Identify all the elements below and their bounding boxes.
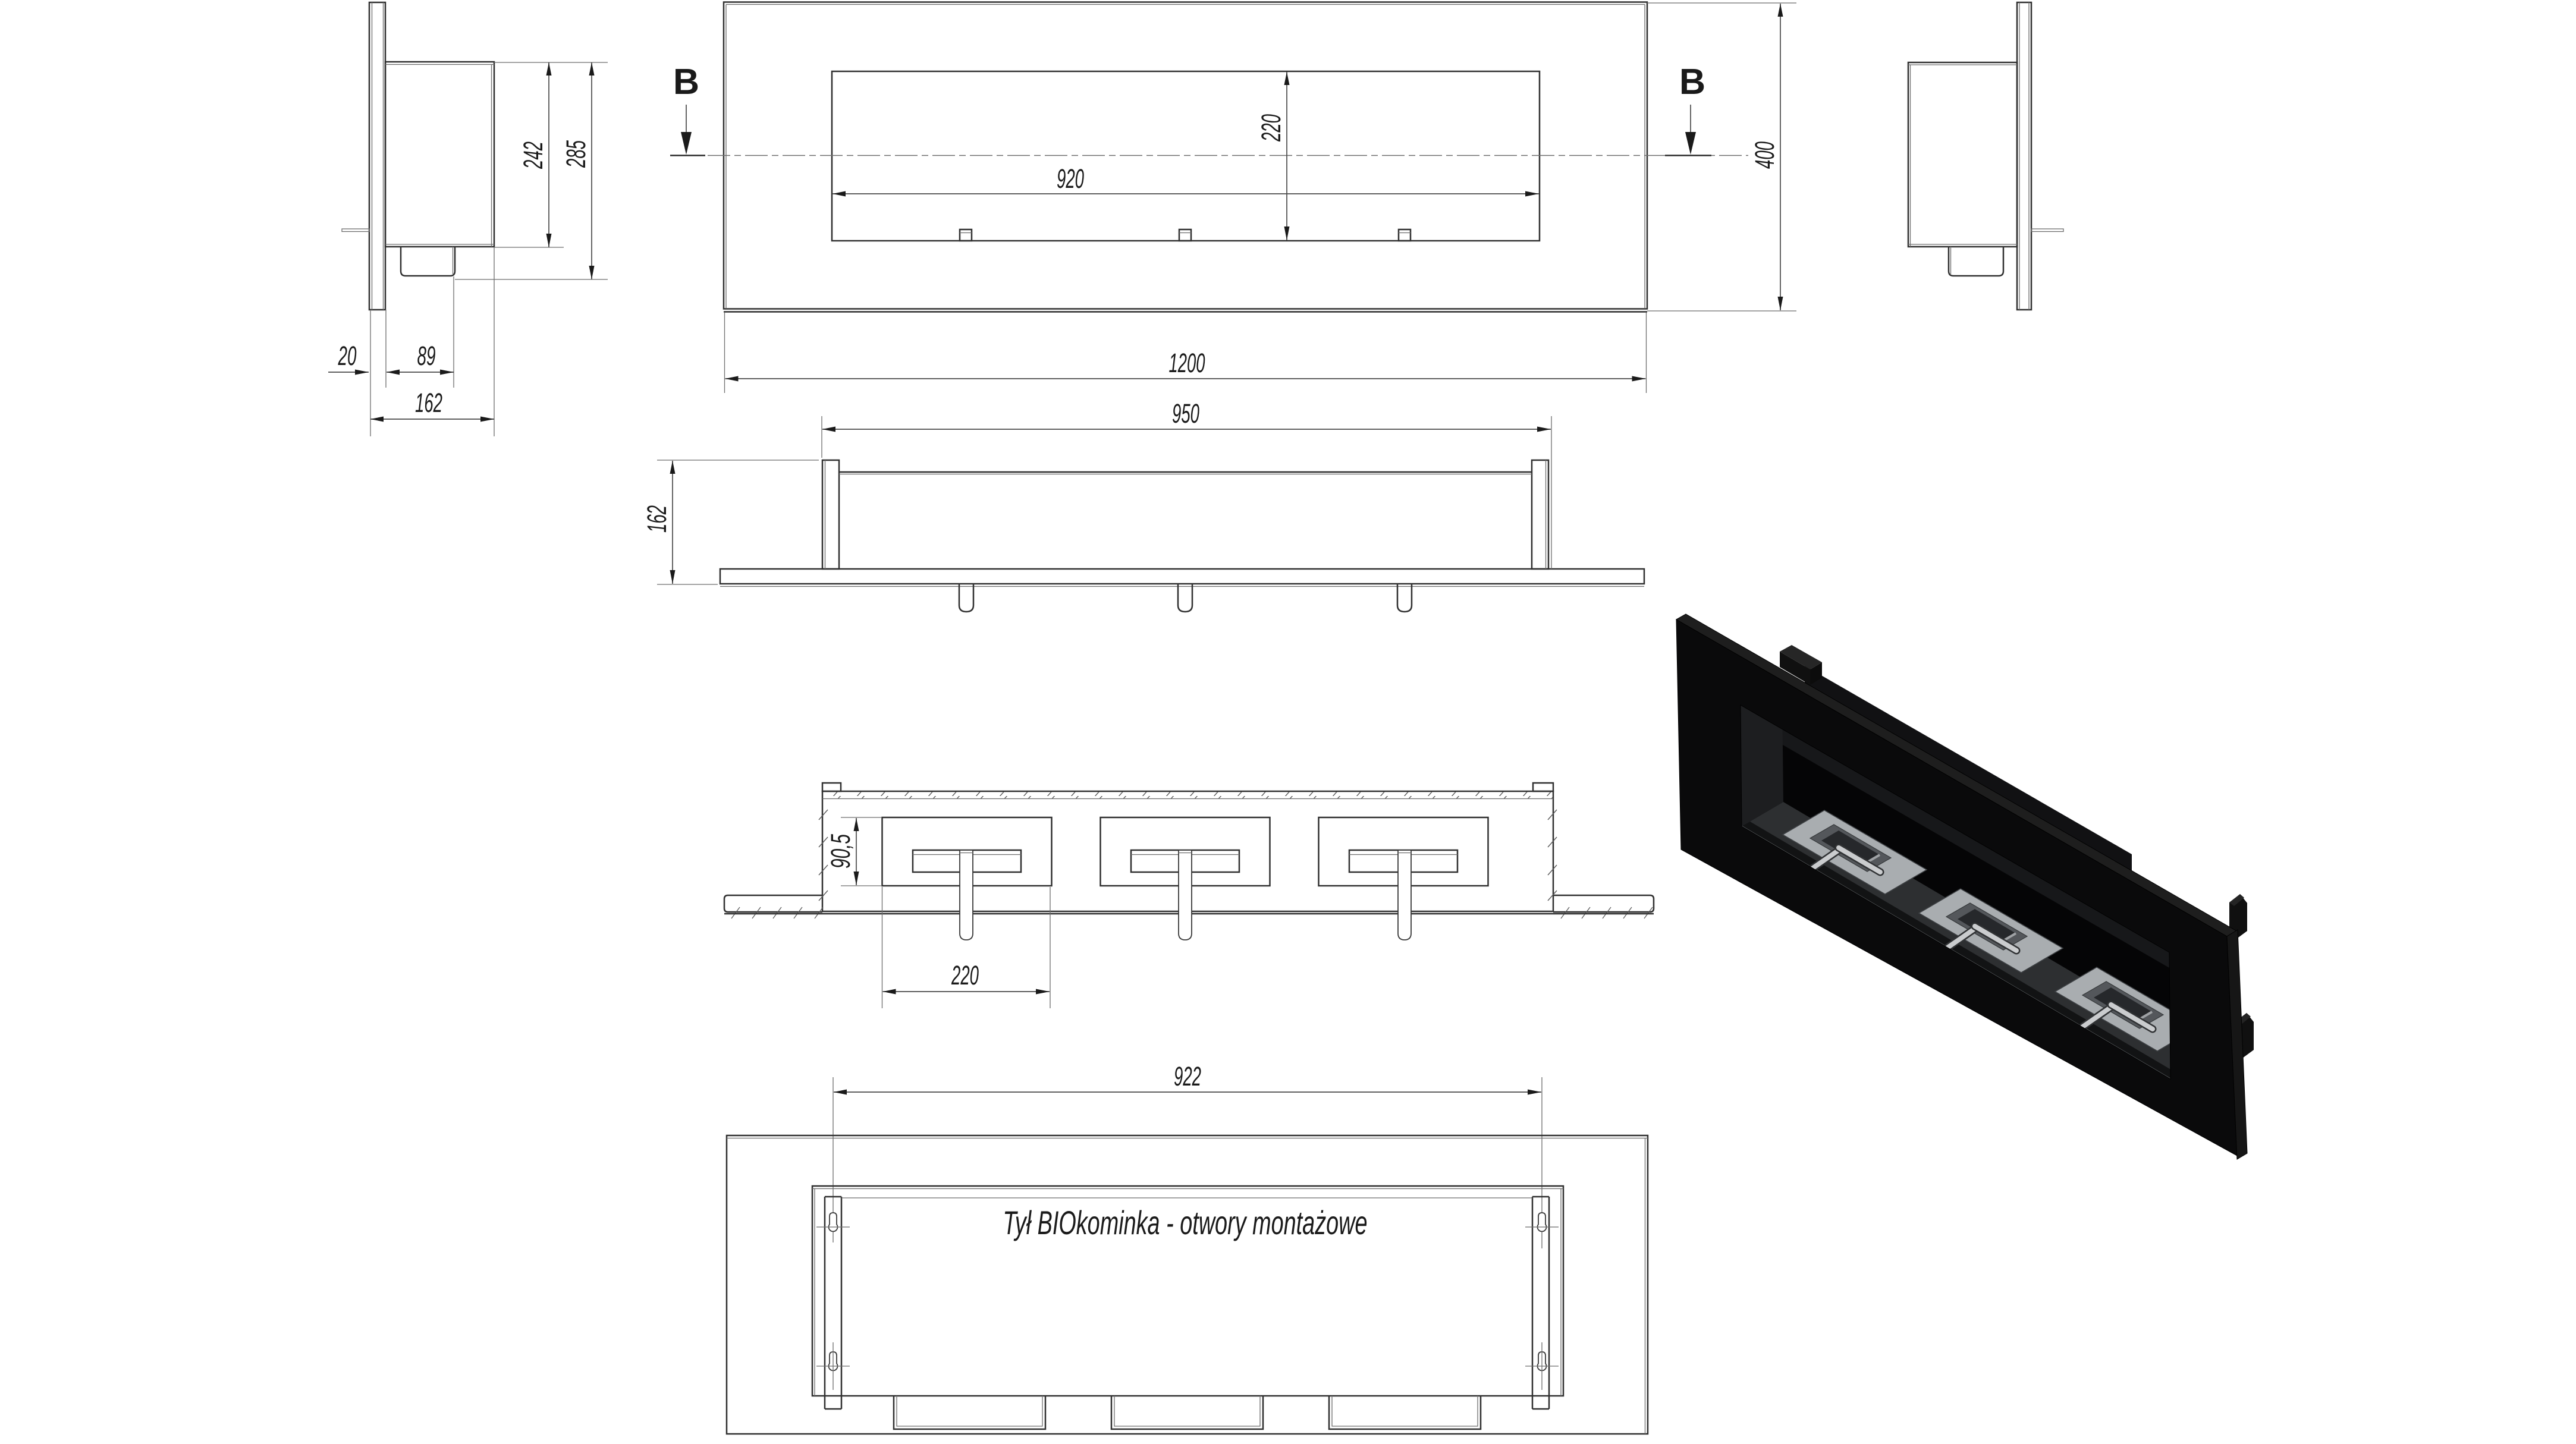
svg-text:220: 220 — [951, 960, 979, 990]
svg-text:220: 220 — [1256, 114, 1286, 142]
svg-text:400: 400 — [1749, 141, 1780, 169]
svg-text:920: 920 — [1057, 163, 1084, 194]
svg-text:162: 162 — [415, 388, 442, 418]
svg-text:1200: 1200 — [1169, 348, 1205, 378]
svg-text:950: 950 — [1172, 398, 1199, 429]
svg-text:162: 162 — [642, 505, 672, 533]
svg-text:20: 20 — [338, 341, 357, 371]
svg-text:B: B — [1679, 61, 1705, 102]
svg-text:242: 242 — [518, 141, 548, 169]
svg-text:922: 922 — [1174, 1061, 1201, 1091]
svg-text:B: B — [673, 61, 699, 102]
svg-text:285: 285 — [561, 140, 591, 168]
svg-text:89: 89 — [417, 341, 436, 371]
svg-text:90,5: 90,5 — [825, 833, 856, 869]
svg-text:Tył BIOkominka - otwory montaż: Tył BIOkominka - otwory montażowe — [1003, 1204, 1368, 1241]
